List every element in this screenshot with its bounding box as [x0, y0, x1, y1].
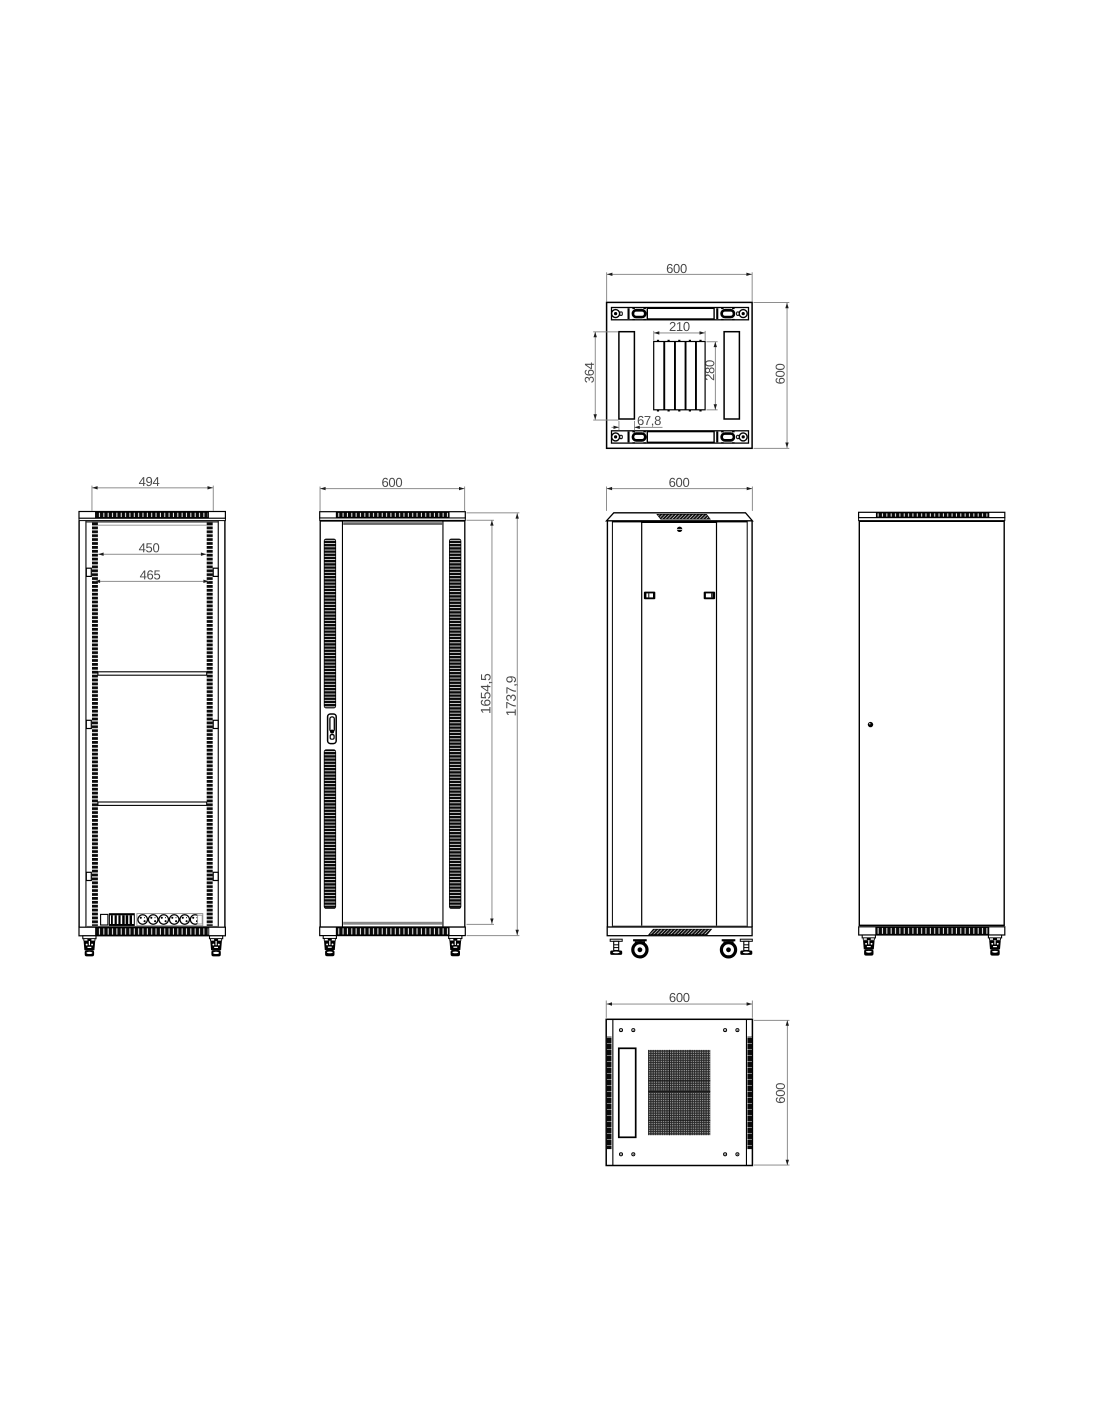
svg-text:450: 450	[139, 540, 160, 555]
svg-text:210: 210	[669, 319, 690, 334]
svg-text:465: 465	[140, 567, 161, 582]
svg-text:600: 600	[669, 990, 690, 1005]
svg-text:600: 600	[773, 1083, 788, 1104]
svg-text:67,8: 67,8	[637, 413, 661, 428]
svg-text:280: 280	[702, 360, 717, 381]
svg-text:494: 494	[139, 474, 160, 489]
svg-text:600: 600	[666, 261, 687, 276]
svg-text:1737,9: 1737,9	[504, 675, 519, 716]
svg-text:600: 600	[669, 475, 690, 490]
svg-text:1654,5: 1654,5	[478, 673, 493, 714]
svg-text:364: 364	[582, 362, 597, 383]
svg-text:600: 600	[773, 364, 788, 385]
svg-text:600: 600	[381, 475, 402, 490]
